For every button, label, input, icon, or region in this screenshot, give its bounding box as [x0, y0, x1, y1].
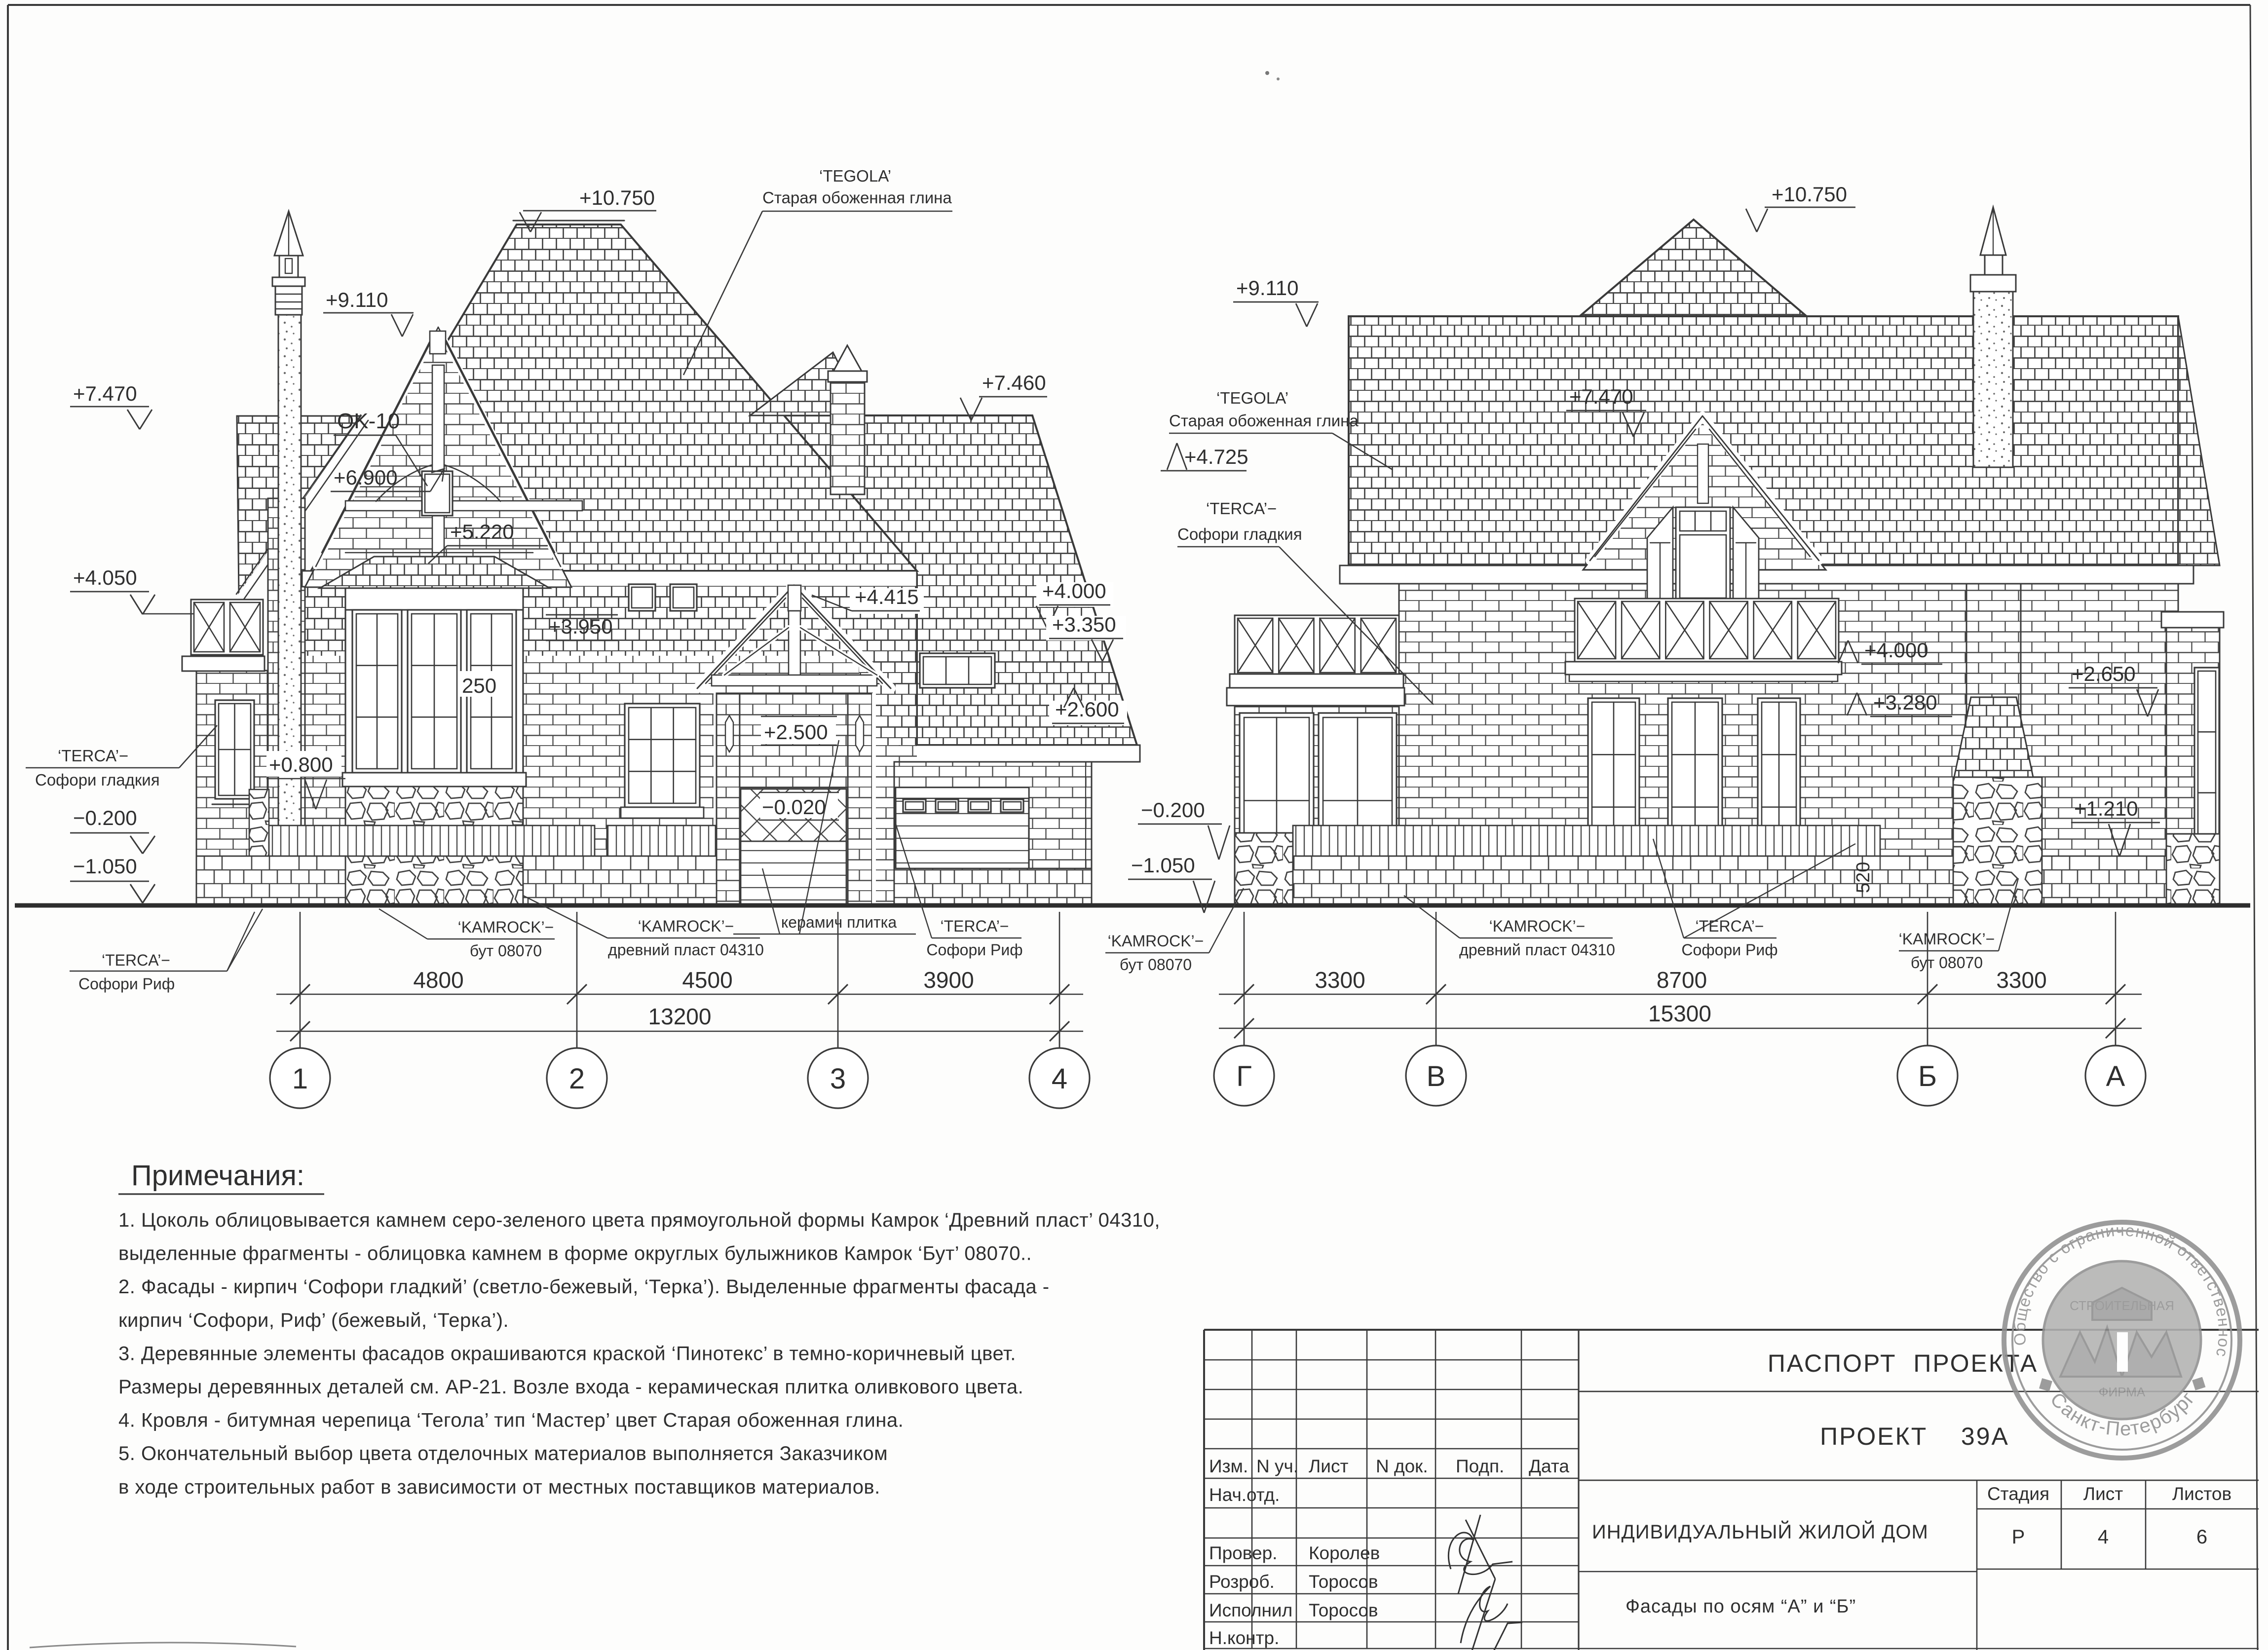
svg-text:+3.350: +3.350 [1052, 613, 1116, 636]
svg-text:OK-10: OK-10 [337, 409, 400, 433]
svg-text:Нач.отд.: Нач.отд. [1209, 1485, 1280, 1505]
svg-text:Софори гладкия: Софори гладкия [1177, 525, 1302, 543]
svg-text:−1.050: −1.050 [73, 855, 137, 878]
svg-text:Изм.: Изм. [1209, 1456, 1248, 1476]
svg-text:−0.200: −0.200 [1141, 798, 1205, 822]
svg-text:СТРОИТЕЛЬНАЯ: СТРОИТЕЛЬНАЯ [2070, 1298, 2174, 1313]
svg-text:выделенные фрагменты - облицов: выделенные фрагменты - облицовка камнем … [118, 1243, 1032, 1265]
svg-text:520: 520 [1853, 862, 1874, 893]
svg-text:+0.800: +0.800 [269, 753, 333, 776]
svg-text:2: 2 [569, 1063, 585, 1095]
svg-text:Софори Риф: Софори Риф [1681, 941, 1777, 959]
svg-text:‘TEGOLA’: ‘TEGOLA’ [819, 167, 891, 185]
svg-text:Королев: Королев [1309, 1543, 1380, 1563]
svg-text:‘TERCA’−: ‘TERCA’− [102, 951, 170, 969]
svg-text:Размеры деревянных деталей см.: Размеры деревянных деталей см. АР-21. Во… [118, 1376, 1023, 1398]
svg-text:3. Деревянные элементы фасадов: 3. Деревянные элементы фасадов окрашиваю… [118, 1343, 1016, 1364]
svg-text:4800: 4800 [413, 967, 463, 993]
svg-text:N док.: N док. [1376, 1456, 1428, 1476]
svg-text:4: 4 [2098, 1526, 2109, 1548]
svg-text:Торосов: Торосов [1309, 1572, 1378, 1592]
svg-text:4. Кровля - битумная черепица: 4. Кровля - битумная черепица ‘Тегола’ т… [118, 1410, 904, 1431]
svg-text:бут 08070: бут 08070 [470, 942, 542, 960]
svg-text:+9.110: +9.110 [1236, 276, 1299, 300]
svg-text:1: 1 [292, 1063, 308, 1095]
svg-text:бут 08070: бут 08070 [1911, 954, 1983, 972]
svg-text:+7.460: +7.460 [982, 371, 1046, 394]
svg-text:4500: 4500 [682, 967, 732, 993]
svg-text:керамич плитка: керамич плитка [781, 913, 897, 931]
svg-text:древний пласт 04310: древний пласт 04310 [1459, 941, 1615, 959]
svg-text:+7.470: +7.470 [73, 382, 137, 405]
svg-text:Б: Б [1918, 1060, 1937, 1092]
svg-text:Розроб.: Розроб. [1209, 1572, 1275, 1592]
svg-text:Исполнил: Исполнил [1209, 1600, 1292, 1620]
svg-text:Софори Риф: Софори Риф [926, 941, 1022, 959]
svg-text:15300: 15300 [1648, 1001, 1711, 1026]
svg-text:Листов: Листов [2172, 1484, 2231, 1504]
svg-text:6: 6 [2196, 1526, 2207, 1548]
svg-text:3900: 3900 [923, 967, 974, 993]
svg-text:‘KAMROCK’−: ‘KAMROCK’− [1489, 917, 1586, 935]
svg-text:2. Фасады - кирпич ‘Софори гла: 2. Фасады - кирпич ‘Софори гладкий’ (све… [118, 1276, 1050, 1298]
svg-text:Лист: Лист [2083, 1484, 2123, 1504]
svg-text:+9.110: +9.110 [326, 288, 388, 311]
svg-text:бут 08070: бут 08070 [1120, 956, 1192, 974]
svg-text:‘TEGOLA’: ‘TEGOLA’ [1216, 389, 1288, 407]
svg-text:+3.280: +3.280 [1873, 691, 1937, 714]
svg-text:Софори Риф: Софори Риф [78, 975, 175, 993]
svg-text:+2.500: +2.500 [764, 720, 828, 744]
svg-text:‘KAMROCK’−: ‘KAMROCK’− [1108, 932, 1204, 950]
svg-text:1. Цоколь облицовывается камне: 1. Цоколь облицовывается камнем серо-зел… [118, 1209, 1160, 1231]
svg-text:8700: 8700 [1657, 967, 1707, 993]
svg-text:+1.210: +1.210 [2074, 797, 2138, 820]
svg-text:Торосов: Торосов [1309, 1600, 1378, 1620]
svg-text:Примечания:: Примечания: [131, 1160, 304, 1192]
svg-text:3300: 3300 [1315, 967, 1365, 993]
svg-text:ПАСПОРТ ПРОЕКТА: ПАСПОРТ ПРОЕКТА [1768, 1350, 2038, 1377]
svg-text:+7.470: +7.470 [1569, 385, 1633, 408]
svg-text:−0.200: −0.200 [73, 806, 137, 829]
svg-text:−1.050: −1.050 [1131, 854, 1195, 877]
svg-text:‘TERCA’−: ‘TERCA’− [1206, 499, 1277, 518]
svg-text:‘TERCA’−: ‘TERCA’− [58, 747, 128, 765]
svg-text:Старая обоженная глина: Старая обоженная глина [1169, 412, 1359, 430]
svg-text:N уч.: N уч. [1256, 1456, 1298, 1476]
svg-text:+4.415: +4.415 [855, 585, 919, 608]
svg-text:+10.750: +10.750 [579, 186, 655, 209]
svg-text:5. Окончательный выбор цвета о: 5. Окончательный выбор цвета отделочных … [118, 1443, 888, 1464]
svg-text:ИНДИВИДУАЛЬНЫЙ ЖИЛОЙ ДОМ: ИНДИВИДУАЛЬНЫЙ ЖИЛОЙ ДОМ [1592, 1520, 1928, 1543]
svg-text:+4.050: +4.050 [73, 566, 137, 589]
svg-text:4: 4 [1052, 1063, 1067, 1095]
svg-text:Г: Г [1236, 1060, 1251, 1092]
svg-text:в ходе строительных работ в за: в ходе строительных работ в зависимости … [118, 1476, 880, 1498]
svg-text:13200: 13200 [648, 1004, 712, 1029]
svg-text:+2.600: +2.600 [1055, 698, 1119, 721]
svg-text:+4.000: +4.000 [1864, 638, 1928, 662]
svg-text:Н.контр.: Н.контр. [1209, 1628, 1279, 1648]
svg-text:+6.900: +6.900 [334, 466, 398, 489]
svg-text:+10.750: +10.750 [1772, 183, 1847, 206]
svg-text:‘TERCA’−: ‘TERCA’− [941, 917, 1009, 935]
svg-text:Провер.: Провер. [1209, 1543, 1277, 1563]
svg-text:Софори гладкия: Софори гладкия [35, 771, 160, 789]
svg-text:Стадия: Стадия [1987, 1484, 2049, 1504]
svg-text:‘KAMROCK’−: ‘KAMROCK’− [1899, 930, 1995, 948]
svg-text:Старая обоженная глина: Старая обоженная глина [762, 188, 952, 207]
svg-text:3300: 3300 [1996, 967, 2046, 993]
svg-text:ПРОЕКТ 39А: ПРОЕКТ 39А [1820, 1423, 2009, 1450]
svg-text:А: А [2106, 1060, 2125, 1092]
svg-text:3: 3 [830, 1063, 846, 1095]
svg-text:+3.950: +3.950 [549, 615, 613, 638]
svg-text:Лист: Лист [1309, 1456, 1348, 1476]
svg-text:+5.220: +5.220 [450, 520, 514, 543]
svg-text:ФИРМА: ФИРМА [2099, 1385, 2146, 1399]
svg-text:250: 250 [462, 674, 496, 697]
svg-text:Дата: Дата [1529, 1456, 1569, 1476]
svg-text:Р: Р [2012, 1526, 2025, 1548]
svg-text:+2.650: +2.650 [2072, 662, 2136, 685]
svg-text:+4.725: +4.725 [1184, 445, 1248, 468]
svg-text:‘KAMROCK’−: ‘KAMROCK’− [458, 918, 554, 936]
svg-text:+4.000: +4.000 [1042, 579, 1106, 602]
svg-text:древний пласт 04310: древний пласт 04310 [608, 941, 764, 959]
svg-text:В: В [1427, 1060, 1446, 1092]
svg-text:Фасады по осям “А” и “Б”: Фасады по осям “А” и “Б” [1625, 1596, 1856, 1617]
svg-text:−0.020: −0.020 [762, 795, 826, 819]
svg-text:‘KAMROCK’−: ‘KAMROCK’− [638, 917, 734, 935]
svg-text:кирпич ‘Софори, Риф’ (бежевый,: кирпич ‘Софори, Риф’ (бежевый, ‘Терка’). [118, 1310, 509, 1331]
svg-text:Подп.: Подп. [1456, 1456, 1504, 1476]
